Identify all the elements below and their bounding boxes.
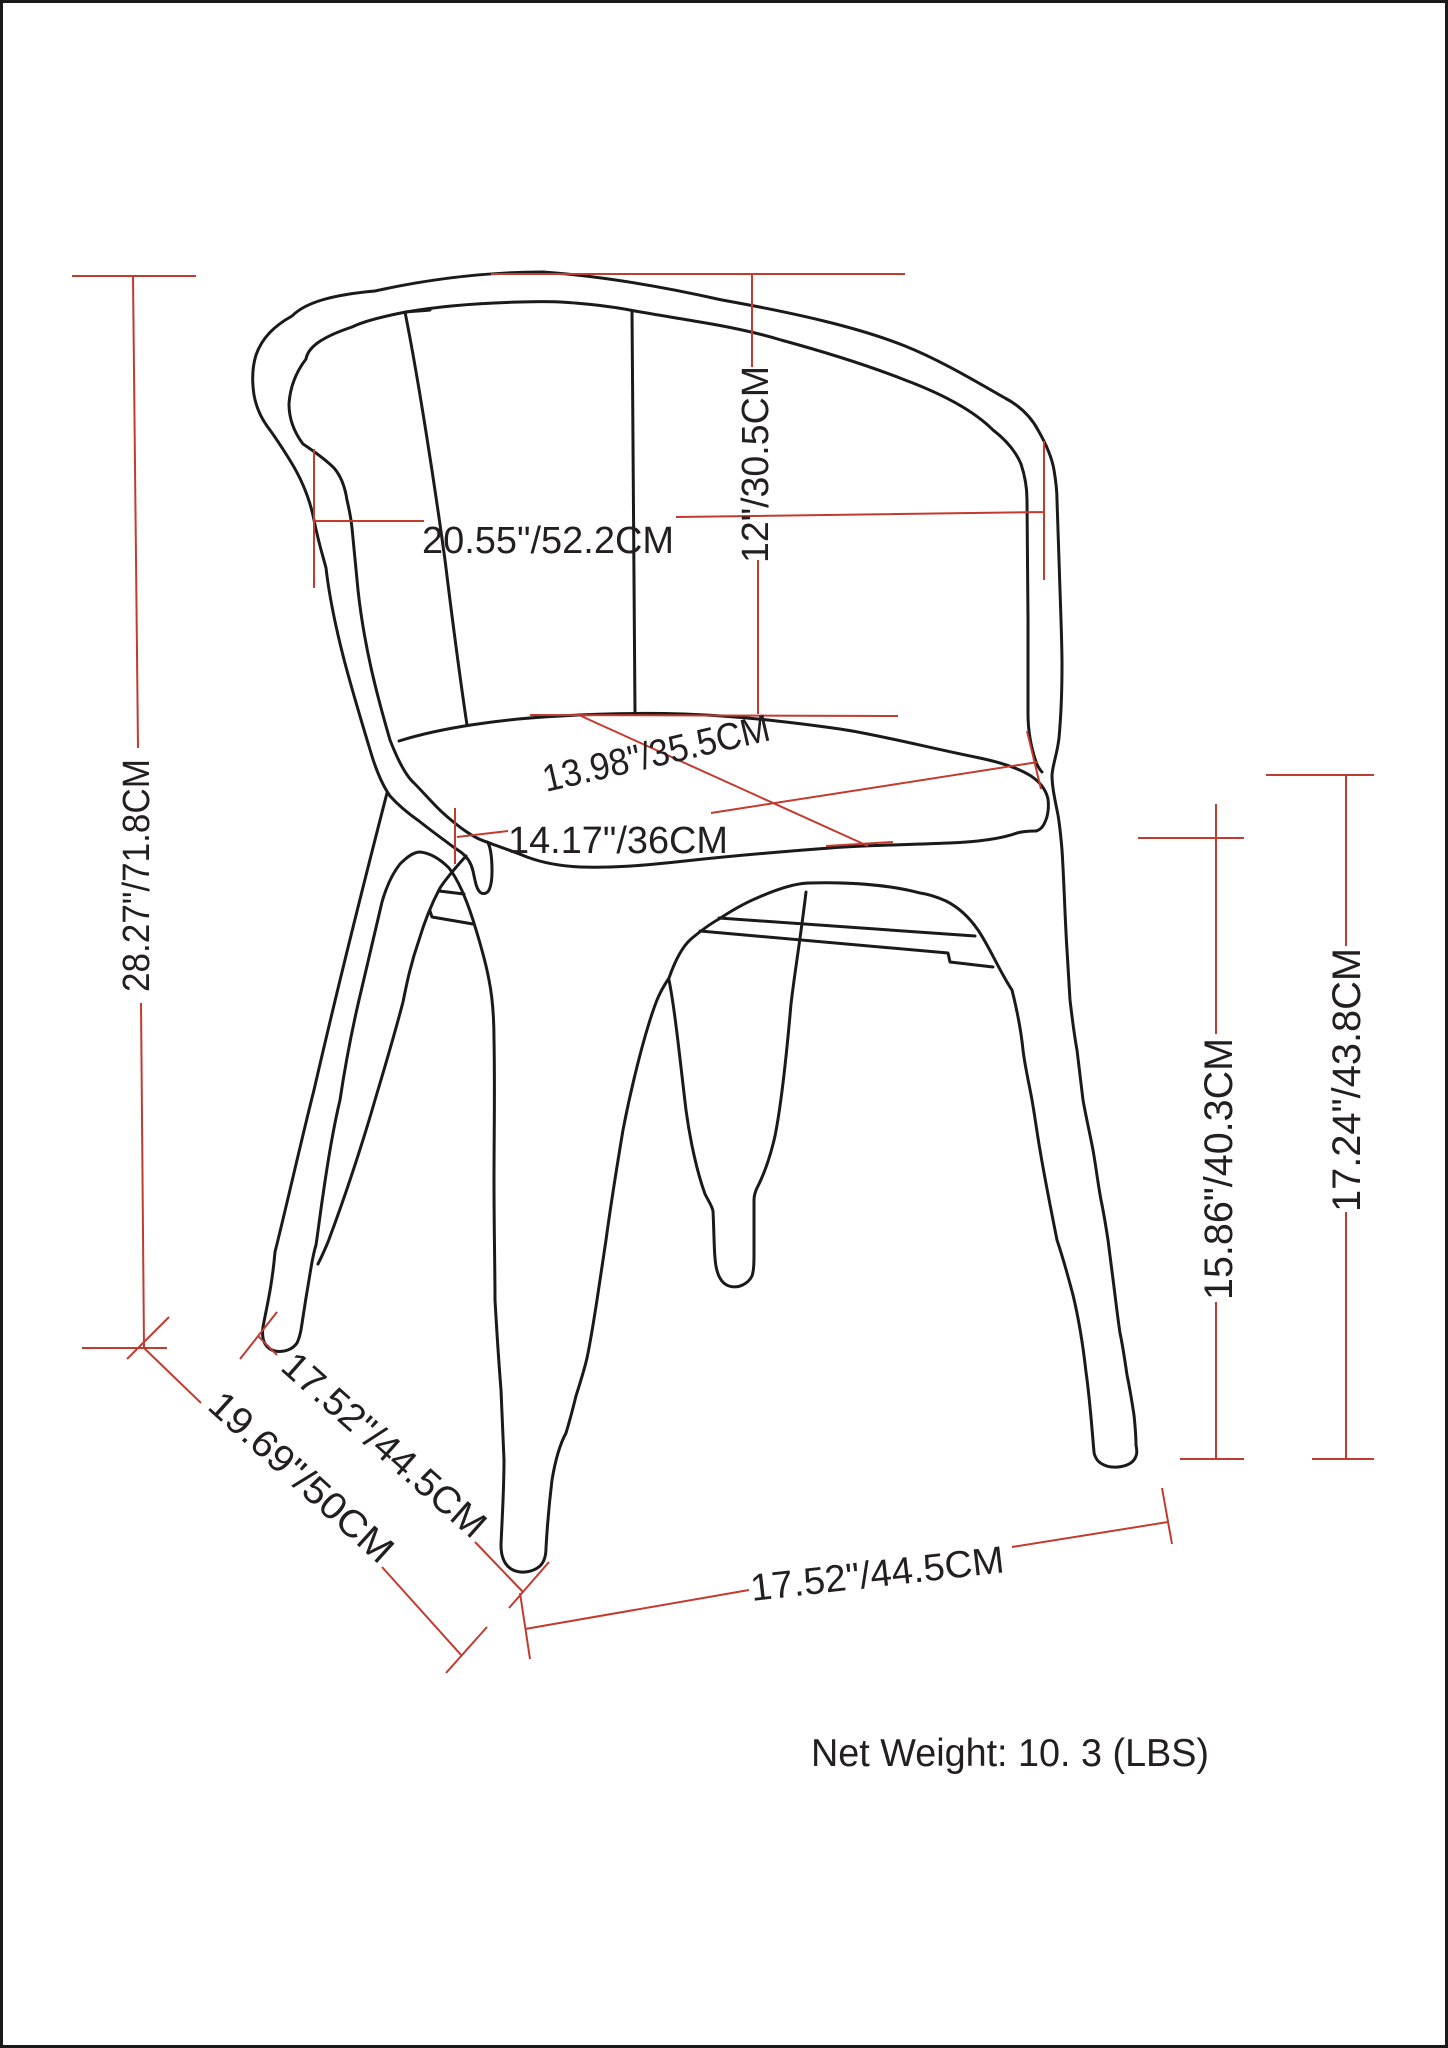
svg-text:20.55"/52.2CM: 20.55"/52.2CM [422,520,674,562]
svg-text:14.17"/36CM: 14.17"/36CM [508,820,728,862]
svg-text:15.86"/40.3CM: 15.86"/40.3CM [1197,1038,1241,1300]
svg-text:28.27"/71.8CM: 28.27"/71.8CM [116,759,158,992]
svg-text:Net Weight: 10. 3 (LBS): Net Weight: 10. 3 (LBS) [811,1732,1209,1775]
svg-text:17.24"/43.8CM: 17.24"/43.8CM [1325,948,1369,1212]
svg-text:12"/30.5CM: 12"/30.5CM [735,366,777,563]
